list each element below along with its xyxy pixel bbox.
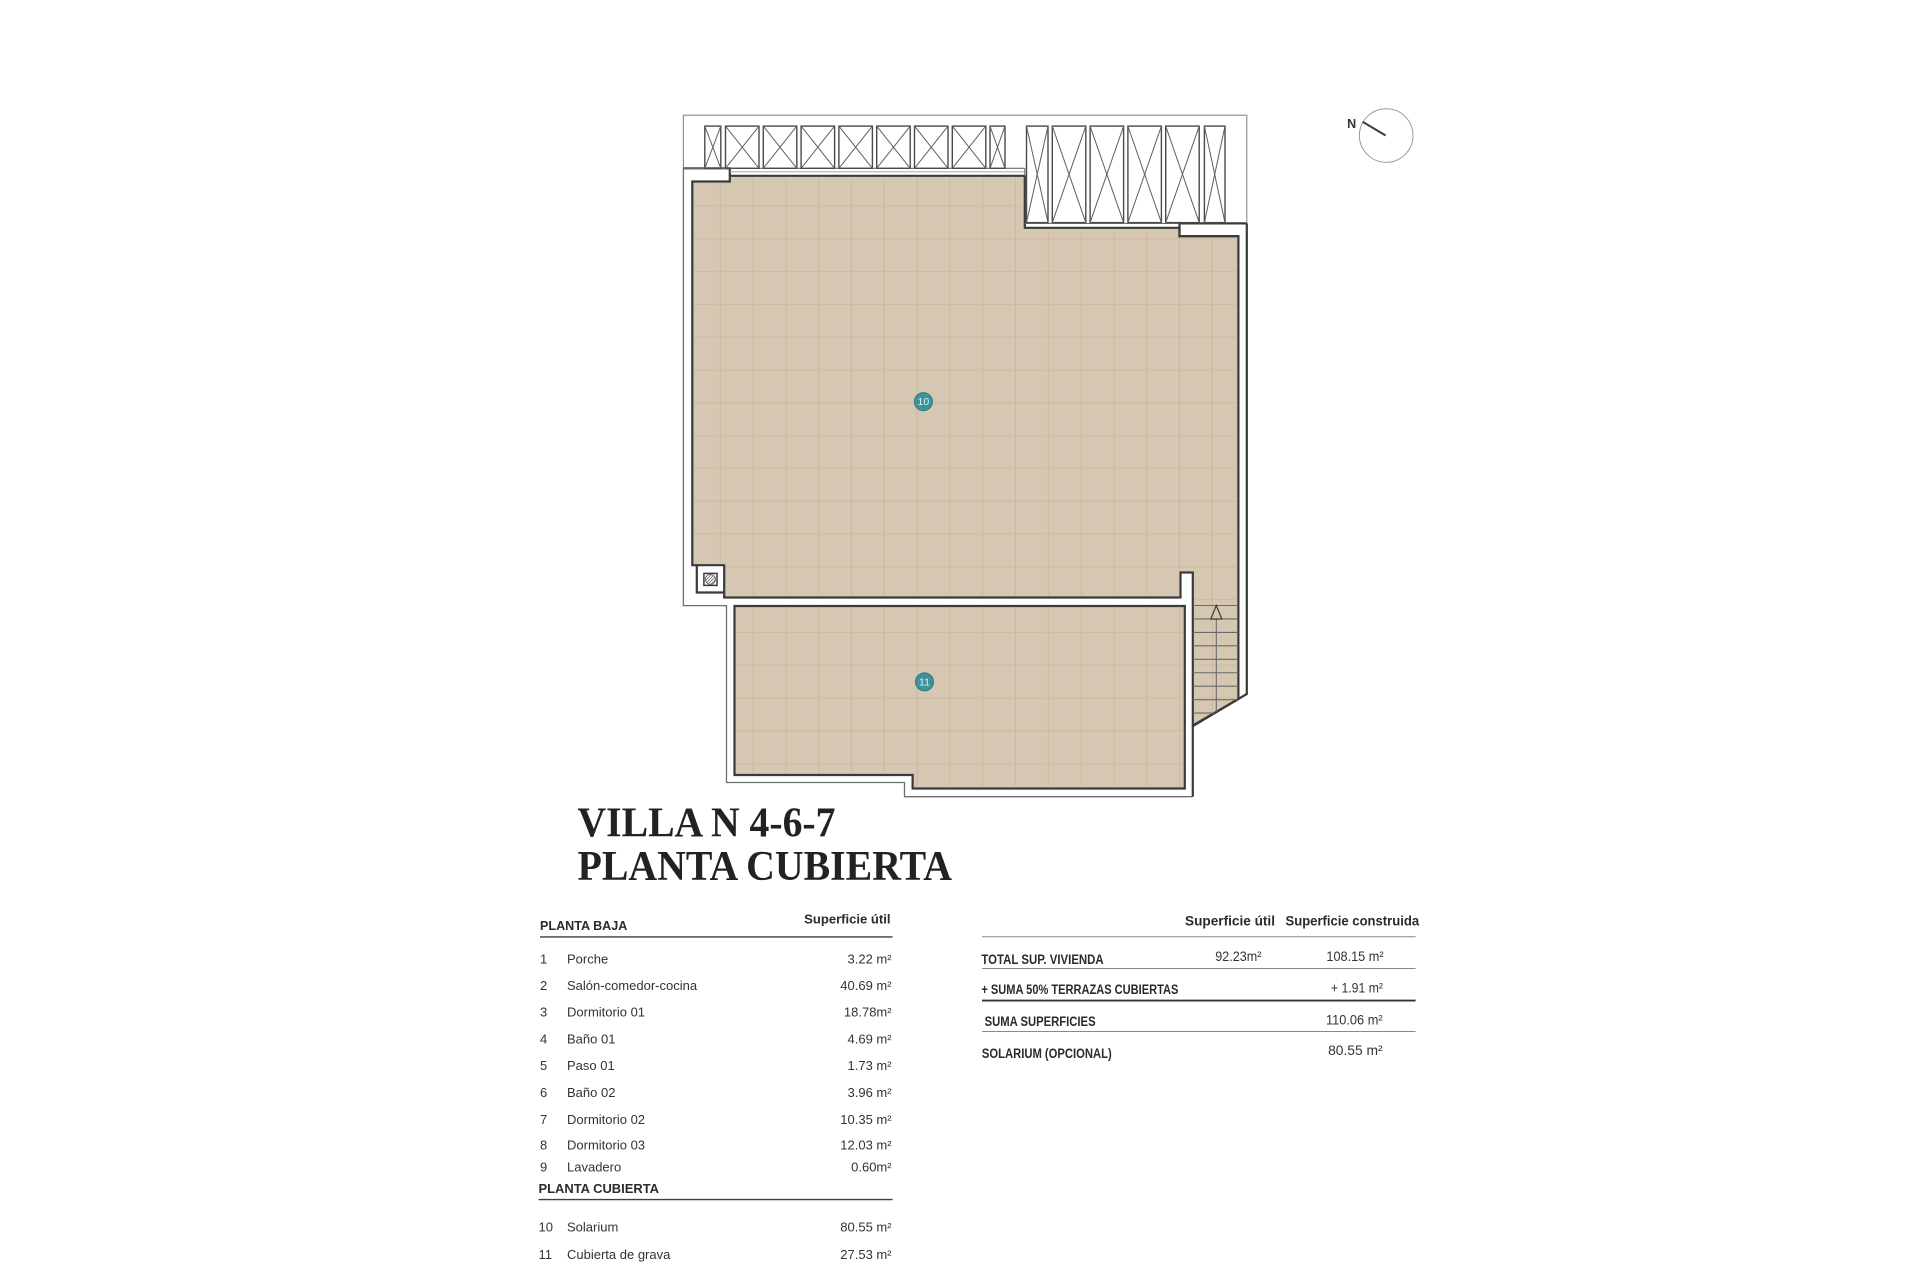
svg-text:3.22 m²: 3.22 m² [848,951,893,966]
svg-text:8: 8 [540,1138,547,1153]
svg-text:Superficie útil: Superficie útil [1185,914,1275,929]
svg-text:2: 2 [540,978,547,993]
svg-text:11: 11 [919,677,930,689]
svg-text:Baño 02: Baño 02 [567,1085,615,1100]
svg-text:Dormitorio 02: Dormitorio 02 [567,1112,645,1127]
svg-text:4.69 m²: 4.69 m² [848,1032,893,1047]
svg-text:10: 10 [539,1220,553,1235]
svg-text:92.23m²: 92.23m² [1215,948,1262,964]
svg-text:5: 5 [540,1058,547,1073]
svg-text:Solarium: Solarium [567,1220,618,1235]
svg-text:6: 6 [540,1085,547,1100]
svg-text:12.03 m²: 12.03 m² [840,1138,892,1153]
svg-text:PLANTA BAJA: PLANTA BAJA [540,919,627,933]
svg-text:110.06 m²: 110.06 m² [1326,1012,1383,1028]
svg-text:Salón-comedor-cocina: Salón-comedor-cocina [567,978,698,993]
svg-text:9: 9 [540,1160,547,1175]
svg-text:N: N [1347,117,1356,131]
svg-text:1: 1 [540,951,547,966]
svg-text:4: 4 [540,1032,547,1047]
svg-text:Paso 01: Paso 01 [567,1058,615,1073]
svg-text:1.73 m²: 1.73 m² [848,1058,893,1073]
svg-text:40.69 m²: 40.69 m² [840,978,892,993]
svg-text:3: 3 [540,1005,547,1020]
svg-text:7: 7 [540,1112,547,1127]
svg-text:18.78m²: 18.78m² [844,1005,892,1020]
svg-text:10: 10 [918,396,930,408]
svg-text:+ 1.91 m²: + 1.91 m² [1331,980,1383,996]
svg-text:3.96 m²: 3.96 m² [848,1085,893,1100]
svg-text:11: 11 [539,1247,553,1262]
svg-text:+ SUMA 50% TERRAZAS CUBIERTAS: + SUMA 50% TERRAZAS CUBIERTAS [981,982,1178,997]
svg-text:Superficie útil: Superficie útil [804,912,890,927]
svg-text:27.53 m²: 27.53 m² [840,1247,892,1262]
svg-text:Dormitorio 03: Dormitorio 03 [567,1138,645,1153]
svg-text:80.55 m²: 80.55 m² [840,1220,892,1235]
svg-text:Superficie construida: Superficie construida [1286,914,1420,929]
svg-text:Lavadero: Lavadero [567,1160,621,1175]
svg-text:108.15 m²: 108.15 m² [1326,948,1383,964]
svg-text:PLANTA CUBIERTA: PLANTA CUBIERTA [578,844,953,890]
svg-text:PLANTA CUBIERTA: PLANTA CUBIERTA [539,1182,660,1196]
svg-text:80.55 m²: 80.55 m² [1328,1042,1383,1058]
svg-text:Dormitorio 01: Dormitorio 01 [567,1005,645,1020]
svg-text:TOTAL SUP. VIVIENDA: TOTAL SUP. VIVIENDA [981,952,1103,967]
svg-text:Baño 01: Baño 01 [567,1032,615,1047]
svg-text:SOLARIUM (OPCIONAL): SOLARIUM (OPCIONAL) [982,1046,1112,1061]
svg-text:0.60m²: 0.60m² [851,1160,892,1175]
svg-text:SUMA SUPERFICIES: SUMA SUPERFICIES [985,1014,1096,1029]
svg-text:10.35 m²: 10.35 m² [840,1112,892,1127]
svg-text:Cubierta de grava: Cubierta de grava [567,1247,671,1262]
svg-text:VILLA N 4-6-7: VILLA N 4-6-7 [578,801,836,847]
svg-text:Porche: Porche [567,951,608,966]
